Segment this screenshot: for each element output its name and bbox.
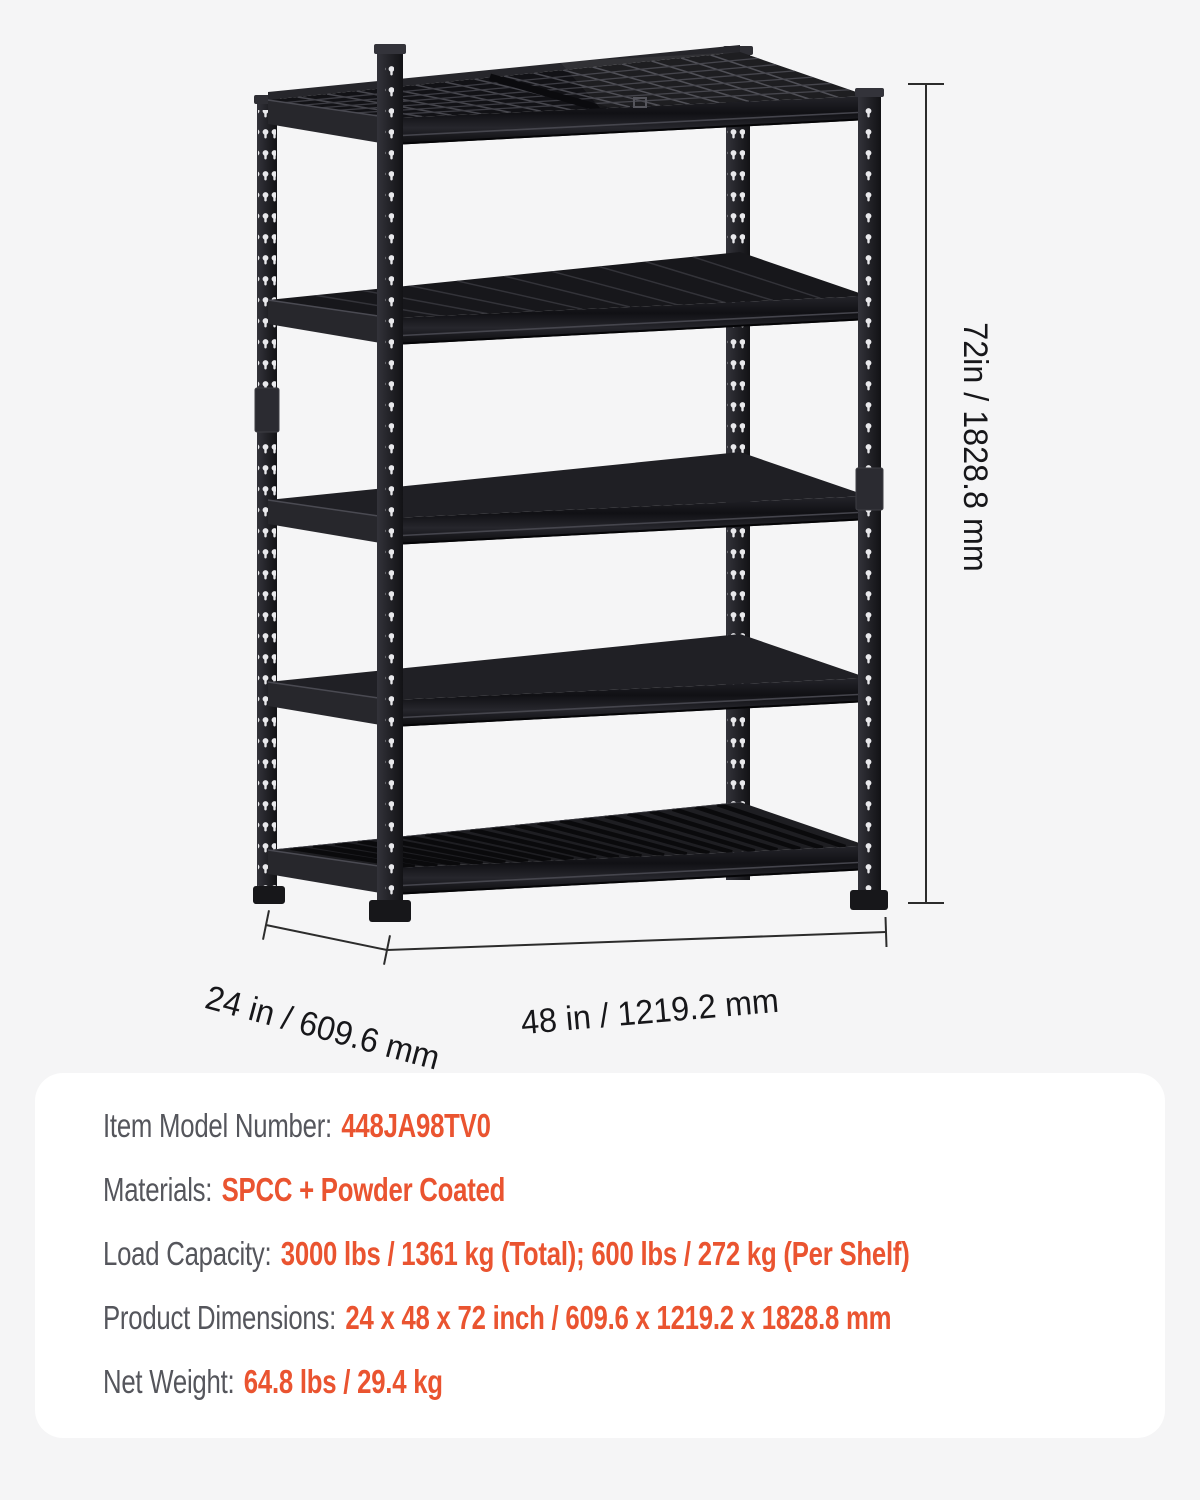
spec-value: 448JA98TV0 — [341, 1107, 490, 1144]
rack-dimension-illustration: 72in / 1828.8 mm 24 in / 609.6 mm 48 in … — [0, 0, 1200, 1070]
front-right-foot — [850, 890, 888, 910]
spec-value: SPCC + Powder Coated — [222, 1171, 506, 1208]
spec-label: Item Model Number: — [103, 1107, 332, 1144]
rack-graphic — [253, 44, 888, 922]
spec-panel: Item Model Number:448JA98TV0 Materials:S… — [35, 1073, 1165, 1438]
depth-dimension-label: 24 in / 609.6 mm — [201, 979, 443, 1070]
width-dimension-label: 48 in / 1219.2 mm — [519, 982, 780, 1042]
spec-value: 24 x 48 x 72 inch / 609.6 x 1219.2 x 182… — [345, 1299, 891, 1336]
back-left-foot — [253, 886, 285, 904]
spec-label: Product Dimensions: — [103, 1299, 336, 1336]
spec-row-materials: Materials:SPCC + Powder Coated — [103, 1173, 908, 1207]
spec-value: 64.8 lbs / 29.4 kg — [244, 1363, 443, 1400]
spec-value: 3000 lbs / 1361 kg (Total); 600 lbs / 27… — [281, 1235, 910, 1272]
spec-row-load-capacity: Load Capacity:3000 lbs / 1361 kg (Total)… — [103, 1237, 908, 1271]
spec-label: Net Weight: — [103, 1363, 234, 1400]
spec-label: Load Capacity: — [103, 1235, 271, 1272]
front-left-foot — [369, 900, 411, 922]
spec-row-dimensions: Product Dimensions:24 x 48 x 72 inch / 6… — [103, 1301, 908, 1335]
spec-row-net-weight: Net Weight:64.8 lbs / 29.4 kg — [103, 1365, 908, 1399]
product-spec-page: 72in / 1828.8 mm 24 in / 609.6 mm 48 in … — [0, 0, 1200, 1500]
spec-label: Materials: — [103, 1171, 212, 1208]
height-dimension-line — [908, 84, 944, 903]
post-connector-plate — [255, 388, 279, 432]
width-dimension-line — [387, 917, 887, 950]
height-dimension-label: 72in / 1828.8 mm — [956, 322, 994, 572]
post-connector-plate — [856, 468, 883, 510]
spec-row-model: Item Model Number:448JA98TV0 — [103, 1109, 908, 1143]
